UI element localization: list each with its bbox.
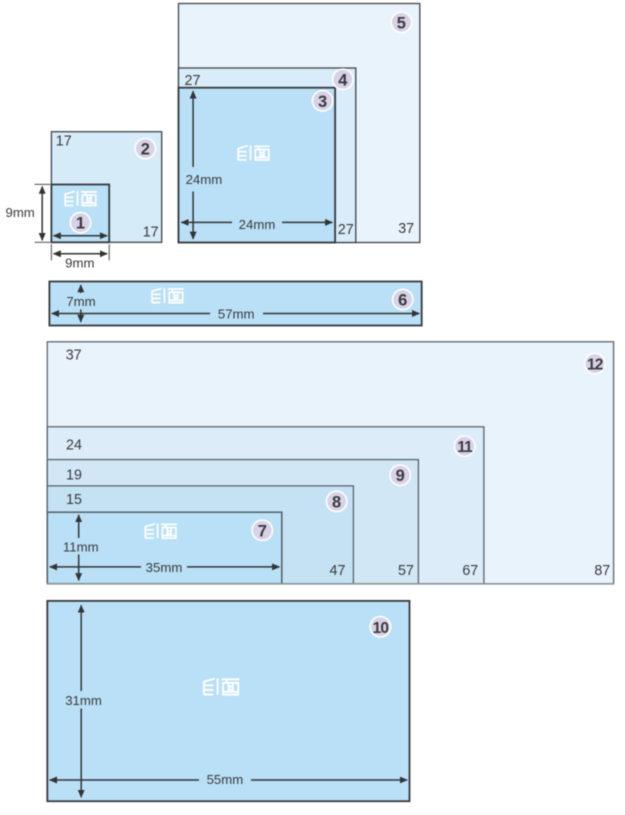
svg-text:6: 6 <box>398 292 407 310</box>
svg-text:47: 47 <box>330 563 346 579</box>
svg-text:31mm: 31mm <box>65 693 102 708</box>
svg-text:17: 17 <box>143 224 159 240</box>
svg-text:9: 9 <box>396 467 405 485</box>
svg-text:27: 27 <box>185 73 201 89</box>
svg-text:5: 5 <box>397 14 406 32</box>
svg-text:24mm: 24mm <box>186 172 223 187</box>
svg-text:12: 12 <box>587 357 603 374</box>
svg-text:8: 8 <box>332 493 341 511</box>
svg-text:17: 17 <box>56 133 72 149</box>
svg-text:37: 37 <box>66 348 82 364</box>
svg-text:24mm: 24mm <box>239 217 276 232</box>
svg-text:9mm: 9mm <box>5 205 34 220</box>
svg-text:2: 2 <box>141 141 150 159</box>
svg-text:7: 7 <box>258 522 267 540</box>
svg-text:35mm: 35mm <box>146 560 183 575</box>
svg-text:55mm: 55mm <box>207 772 244 787</box>
svg-text:3: 3 <box>318 93 327 111</box>
svg-text:37: 37 <box>398 221 414 237</box>
svg-text:4: 4 <box>338 71 348 89</box>
svg-text:15: 15 <box>66 492 82 508</box>
svg-text:67: 67 <box>462 563 478 579</box>
svg-text:7mm: 7mm <box>66 294 95 309</box>
svg-text:27: 27 <box>338 222 354 238</box>
svg-text:57mm: 57mm <box>218 306 255 321</box>
svg-text:19: 19 <box>66 468 82 484</box>
svg-text:11: 11 <box>457 439 473 456</box>
svg-text:9mm: 9mm <box>65 256 94 271</box>
svg-text:11mm: 11mm <box>63 539 99 554</box>
svg-text:57: 57 <box>398 563 414 579</box>
svg-text:87: 87 <box>594 563 610 579</box>
svg-text:1: 1 <box>76 215 85 233</box>
svg-text:24: 24 <box>66 437 82 453</box>
svg-text:10: 10 <box>373 620 389 637</box>
